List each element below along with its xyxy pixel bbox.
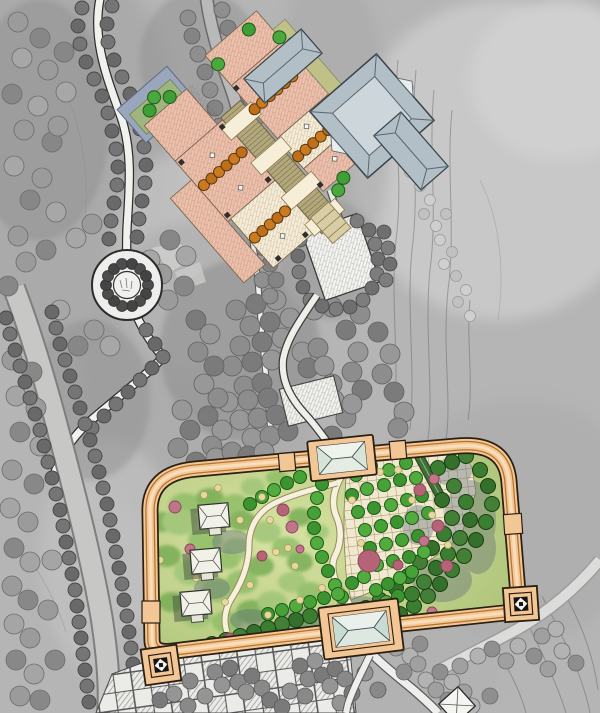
gray-tree	[152, 692, 168, 708]
gray-tree	[461, 285, 472, 296]
gray-tree	[180, 10, 196, 26]
shrub	[409, 497, 416, 504]
street-tree	[101, 35, 115, 49]
gray-tree	[451, 271, 462, 282]
shrub	[358, 540, 365, 547]
gray-tree	[548, 621, 564, 637]
gray-tree	[84, 320, 104, 340]
street-tree	[139, 323, 153, 337]
street-tree	[107, 196, 121, 210]
flowering-tree	[414, 484, 426, 496]
gray-tree	[200, 324, 220, 344]
garden-tree	[332, 588, 345, 601]
garden-tree	[405, 587, 420, 602]
garden-tree	[281, 477, 294, 490]
gray-tree	[465, 311, 476, 322]
shrub	[319, 585, 326, 592]
gray-tree	[296, 280, 310, 294]
gray-tree	[4, 538, 24, 558]
gray-tree	[176, 246, 196, 266]
street-tree	[80, 679, 94, 693]
gray-tree	[172, 400, 192, 420]
gray-tree	[8, 12, 28, 32]
street-tree	[102, 232, 116, 246]
garden-tree	[380, 538, 393, 551]
garden-tree	[485, 497, 500, 512]
gray-tree	[388, 418, 408, 438]
gray-tree	[435, 235, 446, 246]
street-tree	[23, 391, 37, 405]
street-tree	[70, 599, 84, 613]
street-tree	[135, 194, 149, 208]
garden-tree	[406, 512, 419, 525]
gray-tree	[66, 228, 86, 248]
site-plan-stage	[0, 0, 600, 713]
gray-tree	[2, 460, 22, 480]
street-tree	[0, 311, 13, 325]
gray-tree	[174, 276, 194, 296]
garden-tree	[361, 483, 374, 496]
gray-tree	[379, 273, 393, 287]
street-tree	[103, 513, 117, 527]
gray-tree	[568, 655, 584, 671]
site-plan	[0, 0, 600, 713]
street-tree	[117, 593, 131, 607]
garden-tree	[481, 479, 496, 494]
street-tree	[132, 212, 146, 226]
gray-tree	[24, 474, 44, 494]
street-tree	[41, 455, 55, 469]
gray-tree	[48, 116, 68, 136]
flowering-tree	[286, 521, 298, 533]
gray-tree	[242, 352, 262, 372]
street-tree	[115, 577, 129, 591]
gray-tree	[307, 653, 323, 669]
gray-tree	[2, 84, 22, 104]
gray-tree	[4, 156, 24, 176]
paving-accent	[332, 156, 337, 161]
street-tree	[45, 305, 59, 319]
garden-tree	[479, 515, 494, 530]
canopy-shadow	[460, 522, 496, 574]
garden-tree	[352, 506, 365, 519]
gray-tree	[540, 661, 556, 677]
gray-tree	[452, 658, 468, 674]
garden-tree	[370, 584, 383, 597]
gray-tree	[4, 614, 24, 634]
garden-tree	[308, 522, 321, 535]
street-tree	[33, 423, 47, 437]
gray-tree	[238, 390, 258, 410]
gray-tree	[68, 336, 88, 356]
garden-tree	[289, 613, 304, 628]
gray-tree	[368, 237, 382, 251]
street-tree	[124, 641, 138, 655]
street-tree	[49, 321, 63, 335]
garden-tree	[322, 565, 335, 578]
garden-tree	[435, 493, 450, 508]
street-tree	[62, 551, 76, 565]
street-tree	[78, 663, 92, 677]
gray-tree	[20, 628, 40, 648]
gray-tree	[554, 643, 570, 659]
gray-tree	[377, 225, 391, 239]
shrub	[349, 497, 356, 504]
garden-tree	[359, 524, 372, 537]
street-tree	[53, 337, 67, 351]
street-tree	[65, 567, 79, 581]
gray-tree	[356, 293, 370, 307]
gray-tree	[498, 653, 514, 669]
street-tree	[101, 106, 115, 120]
tree-canopy	[287, 552, 313, 572]
gray-tree	[431, 221, 442, 232]
street-tree	[78, 417, 92, 431]
gray-tree	[370, 682, 386, 698]
garden-tree	[459, 495, 474, 510]
street-tree	[72, 615, 86, 629]
street-tree	[138, 176, 152, 190]
gray-tree	[42, 550, 62, 570]
garden-tree	[385, 499, 398, 512]
street-tree	[145, 361, 159, 375]
street-tree	[148, 337, 162, 351]
street-tree	[83, 433, 97, 447]
garden-tree	[311, 492, 324, 505]
gray-tree	[10, 422, 30, 442]
street-tree	[63, 369, 77, 383]
street-tree	[82, 695, 96, 709]
paving-accent	[304, 124, 309, 129]
shrub	[285, 545, 292, 552]
gray-tree	[322, 678, 338, 694]
shrub	[215, 485, 222, 492]
gray-tree	[380, 344, 400, 364]
shrub	[267, 517, 274, 524]
corner-tower-southwest	[141, 645, 182, 686]
gray-tree	[412, 636, 428, 652]
street-tree	[130, 230, 144, 244]
gray-tree	[2, 576, 22, 596]
gray-tree	[453, 297, 464, 308]
garden-tree	[445, 511, 460, 526]
gray-tree	[226, 300, 246, 320]
street-tree	[109, 545, 123, 559]
street-tree	[75, 1, 89, 15]
gray-tree	[16, 252, 36, 272]
hedge-tree	[127, 301, 138, 312]
gray-tree	[336, 320, 356, 340]
gray-tree	[28, 96, 48, 116]
gray-tree	[180, 420, 200, 440]
street-tree	[110, 178, 124, 192]
paving-accent	[238, 185, 243, 190]
flowering-tree	[277, 504, 289, 516]
garden-tree	[382, 578, 395, 591]
flowering-tree	[257, 551, 267, 561]
shrub	[429, 512, 436, 519]
gray-tree	[484, 641, 500, 657]
gray-tree	[18, 512, 38, 532]
street-tree	[74, 631, 88, 645]
flowering-tree	[429, 474, 439, 484]
gray-tree	[24, 664, 44, 684]
gray-tree	[300, 671, 316, 687]
gray-tree	[337, 671, 353, 687]
garden-tree	[294, 471, 307, 484]
gray-tree	[30, 690, 50, 710]
shrub	[237, 517, 244, 524]
gray-tree	[342, 362, 362, 382]
street-tree	[73, 37, 87, 51]
street-tree	[109, 142, 123, 156]
gray-tree	[482, 688, 498, 704]
street-tree	[115, 70, 129, 84]
gray-tree	[262, 288, 278, 304]
paving-accent	[210, 153, 215, 158]
garden-tree	[316, 551, 329, 564]
gray-tree	[180, 698, 196, 713]
street-tree	[104, 214, 118, 228]
gray-tree	[45, 650, 65, 670]
shrub	[201, 492, 208, 499]
shrub	[265, 612, 272, 619]
gray-tree	[100, 336, 120, 356]
garden-tree	[346, 577, 359, 590]
garden-tree	[421, 589, 436, 604]
shrub	[247, 582, 254, 589]
south-gate	[318, 598, 404, 659]
shrub	[273, 549, 280, 556]
shrub	[445, 542, 452, 549]
street-tree	[100, 17, 114, 31]
gray-tree	[230, 410, 250, 430]
corner-tower-southeast	[503, 586, 539, 622]
street-tree	[112, 561, 126, 575]
gray-tree	[160, 230, 180, 250]
gray-tree	[410, 656, 426, 672]
gray-tree	[188, 342, 208, 362]
garden-tree	[445, 455, 460, 470]
garden-tree	[268, 484, 281, 497]
gray-tree	[214, 677, 230, 693]
gray-tree	[238, 684, 254, 700]
gray-tree	[510, 638, 526, 654]
garden-tree	[473, 463, 488, 478]
gray-tree	[190, 46, 206, 62]
gray-tree	[384, 382, 404, 402]
garden-tree	[431, 461, 446, 476]
street-tree	[58, 353, 72, 367]
street-tree	[107, 53, 121, 67]
street-tree	[120, 609, 134, 623]
garden-tree	[244, 498, 257, 511]
garden-tree	[447, 479, 462, 494]
shrub	[297, 597, 304, 604]
gray-tree	[38, 600, 58, 620]
gray-tree	[314, 356, 334, 376]
garden-tree	[396, 534, 409, 547]
gray-tree	[168, 438, 188, 458]
garden-tree	[463, 513, 478, 528]
street-tree	[105, 124, 119, 138]
garden-tree	[318, 592, 331, 605]
street-tree	[45, 471, 59, 485]
street-tree	[18, 375, 32, 389]
street-tree	[121, 385, 135, 399]
garden-tree	[433, 577, 448, 592]
gray-tree	[419, 209, 430, 220]
gray-tree	[350, 214, 364, 228]
gray-tree	[20, 190, 40, 210]
gray-tree	[202, 82, 218, 98]
street-tree	[49, 487, 63, 501]
street-tree	[59, 535, 73, 549]
gray-tree	[197, 688, 213, 704]
gray-tree	[268, 272, 284, 288]
street-tree	[56, 519, 70, 533]
gray-tree	[441, 209, 452, 220]
street-tree	[68, 583, 82, 597]
flowering-tree	[432, 520, 444, 532]
hedge-tree	[141, 271, 152, 282]
garden-tree	[378, 479, 391, 492]
gray-tree	[342, 394, 362, 414]
gray-tree	[248, 408, 268, 428]
gray-tree	[365, 281, 379, 295]
gray-tree	[222, 356, 242, 376]
shrub	[292, 563, 299, 570]
gray-tree	[10, 686, 30, 706]
street-tree	[133, 373, 147, 387]
gray-tree	[534, 628, 550, 644]
garden-tree	[308, 507, 321, 520]
street-tree	[87, 72, 101, 86]
north-gate	[307, 435, 377, 482]
gray-tree	[20, 552, 40, 572]
street-tree	[28, 407, 42, 421]
gray-tree	[32, 168, 52, 188]
gray-tree	[274, 699, 290, 713]
gray-tree	[36, 240, 56, 260]
gray-tree	[329, 302, 343, 316]
gray-tree	[38, 60, 58, 80]
gray-tree	[383, 257, 397, 271]
flowering-tree	[169, 501, 181, 513]
street-tree	[105, 0, 119, 13]
street-tree	[139, 158, 153, 172]
gray-tree	[282, 683, 298, 699]
street-tree	[71, 19, 85, 33]
shrub	[259, 494, 266, 501]
street-tree	[13, 359, 27, 373]
flowering-tree	[441, 560, 453, 572]
gray-tree	[308, 338, 328, 358]
gray-tree	[348, 342, 368, 362]
gray-tree	[292, 265, 306, 279]
garden-tree	[410, 472, 423, 485]
gray-tree	[30, 28, 50, 48]
street-tree	[122, 625, 136, 639]
street-tree	[96, 481, 110, 495]
street-tree	[100, 497, 114, 511]
garden-tree	[304, 596, 317, 609]
gray-tree	[252, 332, 272, 352]
gray-tree	[18, 590, 38, 610]
street-tree	[76, 647, 90, 661]
garden-tree	[391, 516, 404, 529]
garden-tree	[276, 604, 289, 617]
garden-tree	[368, 502, 381, 515]
gray-tree	[182, 673, 198, 689]
street-tree	[109, 397, 123, 411]
gray-tree	[447, 247, 458, 258]
gray-tree	[0, 276, 18, 296]
garden-tree	[457, 549, 472, 564]
street-tree	[37, 439, 51, 453]
roundabout	[92, 250, 162, 320]
gray-tree	[214, 2, 230, 18]
garden-tree	[311, 537, 324, 550]
garden-tree	[394, 474, 407, 487]
gray-tree	[46, 202, 66, 222]
gray-tree	[82, 214, 102, 234]
street-tree	[8, 343, 22, 357]
gray-tree	[8, 226, 28, 246]
gray-tree	[470, 648, 486, 664]
garden-tree	[453, 531, 468, 546]
gray-tree	[184, 28, 200, 44]
gray-tree	[425, 195, 436, 206]
street-tree	[106, 529, 120, 543]
gray-tree	[166, 686, 182, 702]
gray-tree	[54, 42, 74, 62]
gray-tree	[526, 648, 542, 664]
garden-tree	[403, 551, 416, 564]
gray-tree	[368, 322, 388, 342]
garden-tree	[417, 575, 432, 590]
flowering-tree	[296, 545, 304, 553]
gray-tree	[14, 120, 34, 140]
gray-tree	[439, 259, 450, 270]
street-tree	[73, 401, 87, 415]
flowering-tree	[419, 536, 429, 546]
garden-tree	[375, 520, 388, 533]
garden-tree	[418, 546, 431, 559]
gray-tree	[396, 664, 412, 680]
street-tree	[92, 465, 106, 479]
street-tree	[156, 350, 170, 364]
garden-tree	[469, 533, 484, 548]
gray-tree	[222, 660, 238, 676]
street-tree	[79, 55, 93, 69]
street-tree	[88, 449, 102, 463]
street-tree	[53, 503, 67, 517]
gray-tree	[381, 241, 395, 255]
gray-tree	[208, 388, 228, 408]
garden-tree	[406, 566, 419, 579]
hedge-tree	[117, 259, 128, 270]
gray-tree	[343, 300, 357, 314]
shrub	[222, 599, 229, 606]
street-tree	[68, 385, 82, 399]
street-tree	[95, 89, 109, 103]
gray-tree	[0, 498, 20, 518]
gray-tree	[56, 82, 76, 102]
garden-tree	[383, 464, 396, 477]
flowering-tree	[358, 550, 380, 572]
street-tree	[3, 327, 17, 341]
